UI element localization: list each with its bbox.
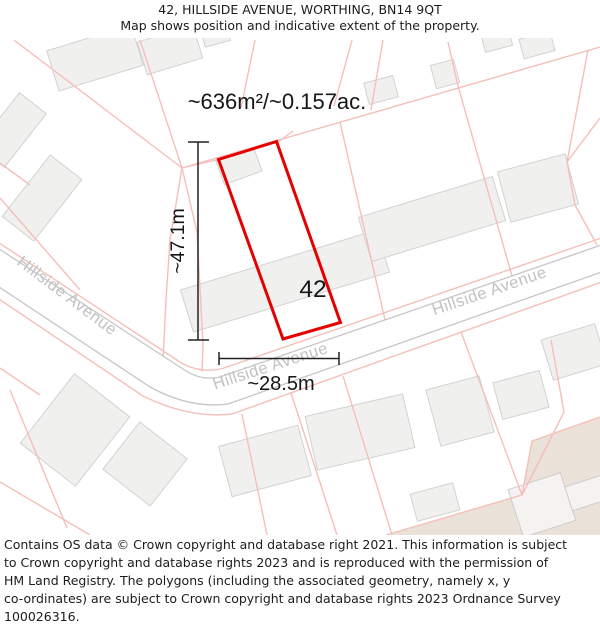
building [219,425,312,496]
copyright-line: 100026316. [4,608,598,626]
copyright-line: co-ordinates) are subject to Crown copyr… [4,590,598,608]
plot-number-label: 42 [299,276,326,303]
copyright-notice: Contains OS data © Crown copyright and d… [4,536,598,626]
building [181,230,390,332]
page-subtitle: Map shows position and indicative extent… [0,18,600,34]
building [358,177,505,262]
area-label: ~636m²/~0.157ac. [188,89,367,114]
map-header: 42, HILLSIDE AVENUE, WORTHING, BN14 9QT … [0,2,600,34]
building [137,38,202,75]
copyright-line: to Crown copyright and database rights 2… [4,554,598,572]
page-title: 42, HILLSIDE AVENUE, WORTHING, BN14 9QT [0,2,600,18]
building [202,38,231,47]
copyright-line: Contains OS data © Crown copyright and d… [4,536,598,554]
building [364,75,399,104]
building [497,154,578,222]
building [0,93,46,168]
building [2,155,82,241]
height-dimension-label: ~47.1m [167,208,189,274]
property-map: Hillside Avenue Hillside Avenue Hillside… [0,38,600,535]
building [47,38,143,91]
building [493,370,549,419]
copyright-line: HM Land Registry. The polygons (includin… [4,572,598,590]
building [519,38,555,59]
building [481,38,512,52]
building [541,324,600,381]
building [426,376,494,446]
width-dimension-label: ~28.5m [247,373,314,395]
